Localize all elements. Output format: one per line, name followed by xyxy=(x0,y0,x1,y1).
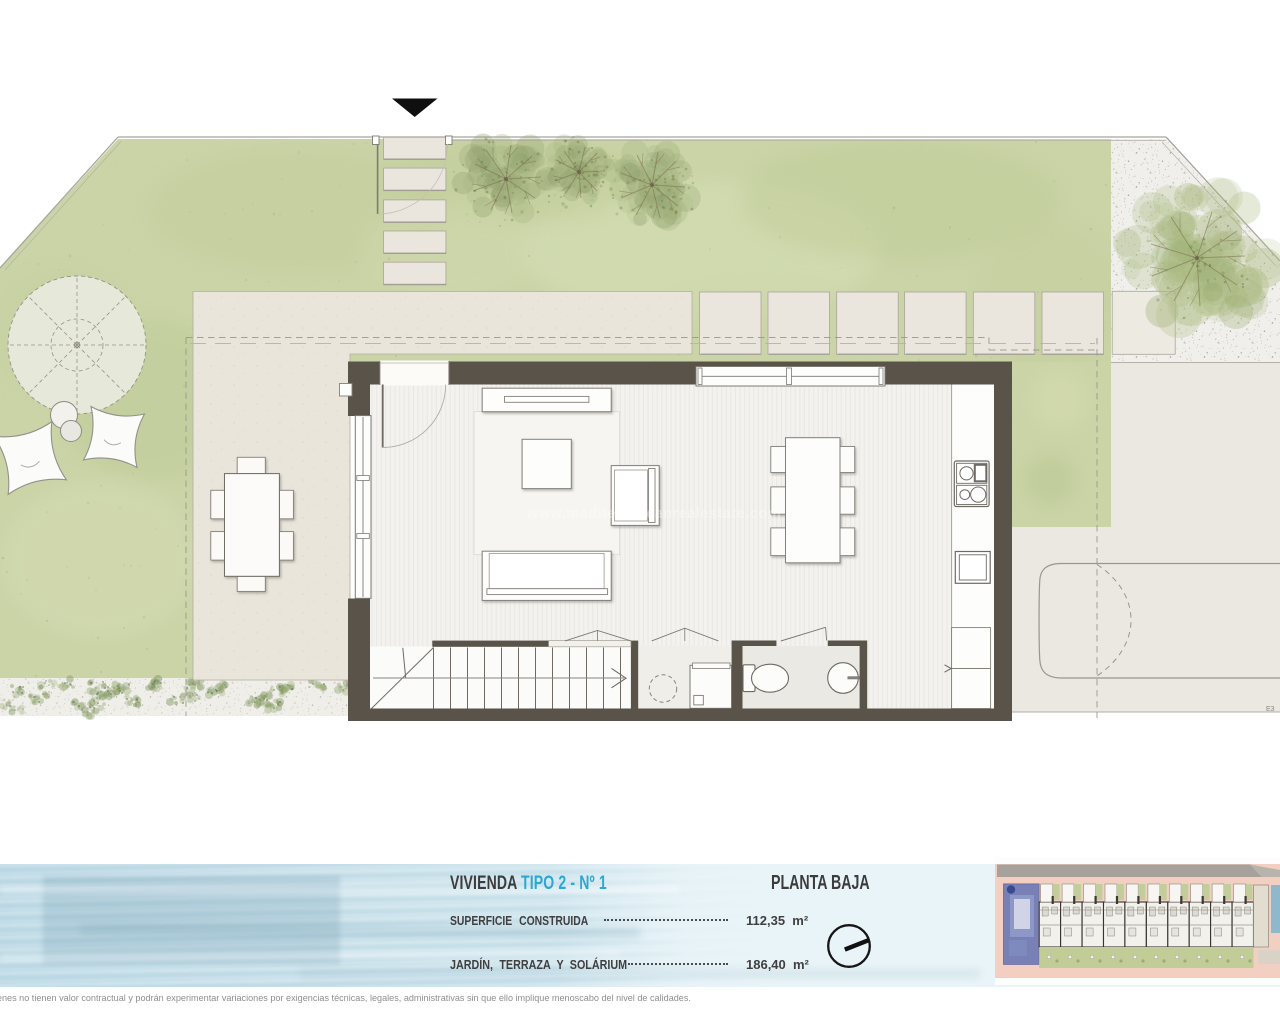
svg-text:www.mediterraneanrealestate.co: www.mediterraneanrealestate.com xyxy=(526,506,781,522)
svg-text:E3: E3 xyxy=(1266,706,1275,713)
